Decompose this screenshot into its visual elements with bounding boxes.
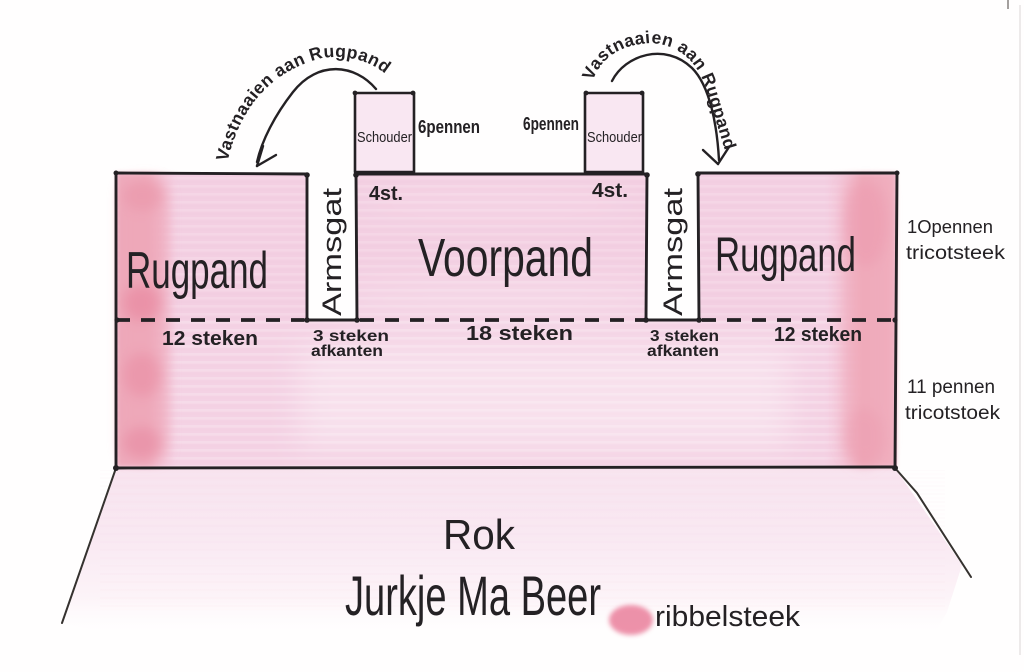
- svg-text:Rugpand: Rugpand: [126, 242, 268, 300]
- svg-text:1Opennen: 1Opennen: [907, 217, 993, 237]
- svg-text:Armsgat: Armsgat: [317, 187, 347, 316]
- svg-text:4st.: 4st.: [369, 183, 403, 205]
- svg-text:12 steken: 12 steken: [774, 324, 862, 346]
- svg-text:Schouder: Schouder: [587, 129, 642, 146]
- svg-text:afkanten: afkanten: [647, 343, 719, 360]
- svg-text:tricotsteek: tricotsteek: [906, 243, 1006, 264]
- svg-text:6pennen: 6pennen: [418, 117, 480, 137]
- svg-text:afkanten: afkanten: [311, 343, 383, 360]
- svg-text:Voorpand: Voorpand: [418, 228, 593, 288]
- svg-text:Jurkje Ma Beer: Jurkje Ma Beer: [345, 564, 601, 627]
- svg-text:12 steken: 12 steken: [162, 328, 258, 350]
- svg-text:Schouder: Schouder: [357, 129, 412, 146]
- svg-text:4st.: 4st.: [592, 180, 628, 202]
- svg-text:Rugpand: Rugpand: [715, 229, 856, 282]
- svg-text:11 pennen: 11 pennen: [907, 377, 995, 398]
- svg-text:tricotstoek: tricotstoek: [905, 403, 1001, 424]
- svg-text:18 steken: 18 steken: [466, 323, 573, 345]
- svg-text:6pennen: 6pennen: [523, 114, 579, 134]
- svg-text:Rok: Rok: [443, 511, 516, 558]
- svg-text:Armsgat: Armsgat: [658, 187, 688, 316]
- svg-text:ribbelsteek: ribbelsteek: [655, 601, 801, 633]
